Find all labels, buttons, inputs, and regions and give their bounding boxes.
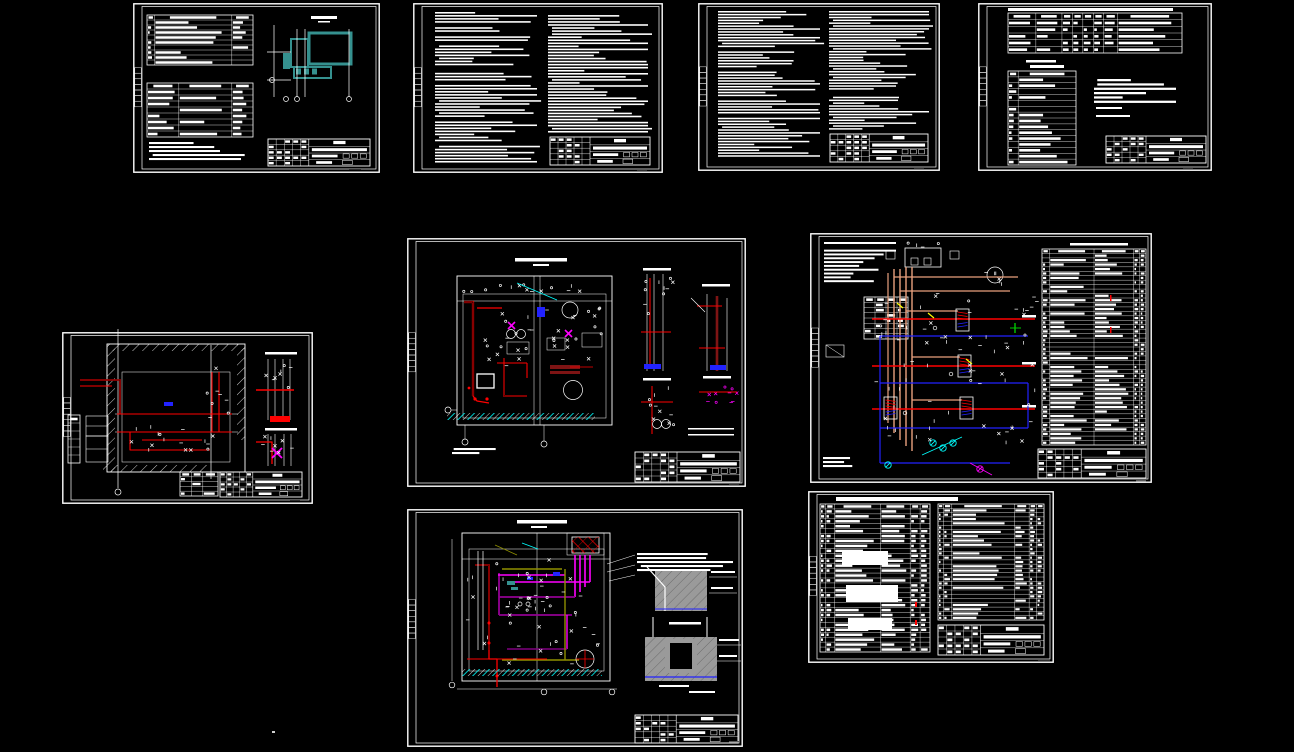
- sheet-9-material-list[interactable]: [808, 491, 1054, 663]
- sheet-5-pump-room-plan[interactable]: [62, 332, 313, 504]
- stray-pixel: [272, 731, 275, 733]
- sheet-graphics: [63, 329, 312, 503]
- sheet-8-heat-network-piping-plan[interactable]: [407, 509, 743, 747]
- sheet-6-boiler-room-piping-plan[interactable]: [407, 238, 746, 487]
- sheet-graphics: [811, 234, 1151, 482]
- sheet-graphics: [134, 4, 379, 172]
- sheet-7-thermal-schematic[interactable]: [810, 233, 1152, 483]
- sheet-graphics: [408, 510, 742, 746]
- sheet-graphics: [414, 4, 662, 172]
- sheet-graphics: [408, 239, 745, 486]
- sheet-2-general-notes-1[interactable]: [413, 3, 663, 173]
- sheet-3-general-notes-2[interactable]: [698, 3, 940, 171]
- sheet-graphics: [809, 492, 1053, 662]
- cad-canvas[interactable]: [0, 0, 1294, 752]
- sheet-1-cover-tables-plan[interactable]: [133, 3, 380, 173]
- sheet-4-equipment-table-legend[interactable]: [978, 3, 1212, 171]
- sheet-graphics: [979, 4, 1211, 170]
- sheet-graphics: [699, 4, 939, 170]
